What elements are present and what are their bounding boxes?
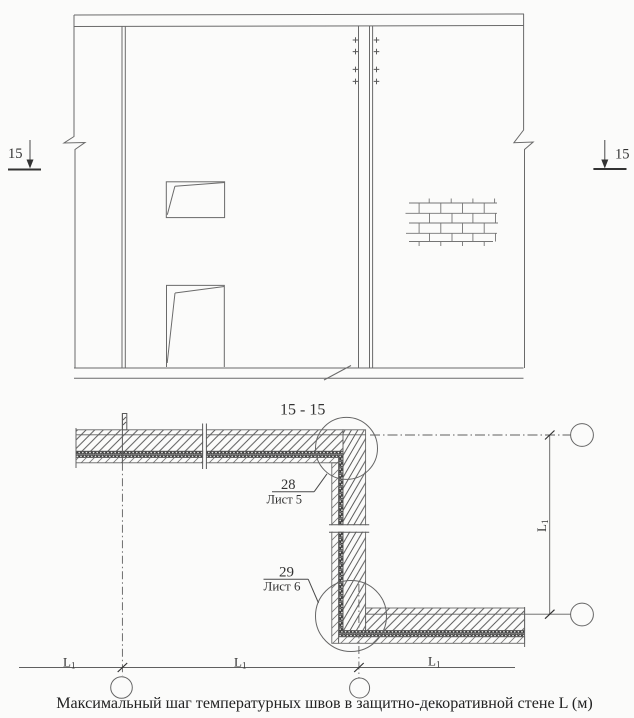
svg-text:15: 15	[615, 147, 630, 163]
svg-text:15: 15	[8, 146, 23, 162]
svg-text:Лист 6: Лист 6	[264, 579, 301, 594]
svg-text:Максимальный шаг температурных: Максимальный шаг температурных швов в за…	[56, 695, 593, 712]
svg-text:15 - 15: 15 - 15	[280, 402, 325, 419]
svg-text:Лист 5: Лист 5	[267, 493, 303, 507]
svg-text:28: 28	[281, 477, 296, 493]
